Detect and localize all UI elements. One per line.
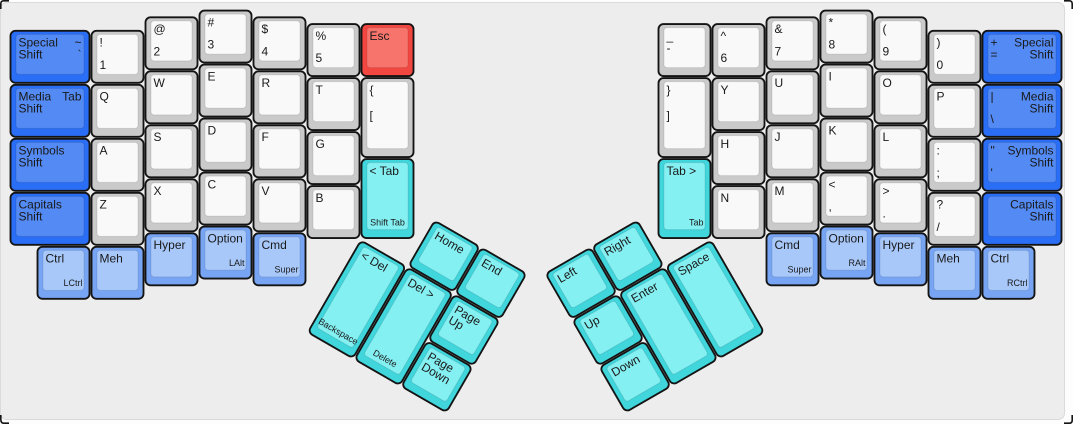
svg-text:LAlt: LAlt xyxy=(229,258,245,268)
svg-text:Ctrl: Ctrl xyxy=(46,252,65,266)
svg-text:Super: Super xyxy=(274,265,298,275)
svg-text:Shift: Shift xyxy=(19,156,44,170)
svg-text:}: } xyxy=(667,83,671,97)
svg-text:>: > xyxy=(883,184,890,198)
svg-text:6: 6 xyxy=(721,51,728,65)
svg-text:Hyper: Hyper xyxy=(154,238,186,252)
svg-text:#: # xyxy=(208,15,215,29)
svg-text:U: U xyxy=(775,76,784,90)
svg-text:): ) xyxy=(937,36,941,50)
svg-text:P: P xyxy=(937,90,945,104)
svg-text:I: I xyxy=(829,69,832,83)
svg-text:<: < xyxy=(829,177,836,191)
svg-text:Q: Q xyxy=(100,90,109,104)
svg-text:M: M xyxy=(775,184,785,198)
svg-text:': ' xyxy=(991,166,993,180)
svg-text:Shift: Shift xyxy=(1029,102,1054,116)
svg-text:1: 1 xyxy=(100,58,107,72)
svg-text:D: D xyxy=(208,123,217,137)
svg-text:,: , xyxy=(829,200,832,214)
svg-text:Super: Super xyxy=(787,265,811,275)
svg-text:Shift: Shift xyxy=(19,48,44,62)
svg-text:?: ? xyxy=(937,198,944,212)
svg-text:Ctrl: Ctrl xyxy=(991,252,1010,266)
svg-text:(: ( xyxy=(883,22,887,36)
svg-text:O: O xyxy=(883,76,892,90)
svg-text:T: T xyxy=(316,83,324,97)
svg-text:Shift: Shift xyxy=(19,102,44,116)
svg-text:B: B xyxy=(316,191,324,205)
svg-text:%: % xyxy=(316,29,327,43)
svg-text:9: 9 xyxy=(883,44,890,58)
svg-text:4: 4 xyxy=(262,44,269,58)
svg-text:< Tab: < Tab xyxy=(370,164,400,178)
svg-text:L: L xyxy=(883,130,890,144)
svg-text:S: S xyxy=(154,130,162,144)
svg-text:RCtrl: RCtrl xyxy=(1007,278,1028,288)
svg-text:Shift: Shift xyxy=(1029,156,1054,170)
svg-text:Hyper: Hyper xyxy=(883,238,915,252)
svg-text:!: ! xyxy=(100,36,103,50)
svg-text:N: N xyxy=(721,191,730,205)
svg-text:V: V xyxy=(262,184,270,198)
svg-text:Option: Option xyxy=(829,231,864,245)
svg-text:7: 7 xyxy=(775,44,782,58)
svg-text:Tab: Tab xyxy=(62,90,82,104)
svg-text:Tab: Tab xyxy=(689,217,704,227)
svg-text:Shift Tab: Shift Tab xyxy=(370,217,405,227)
svg-text:Option: Option xyxy=(208,231,243,245)
svg-text:Cmd: Cmd xyxy=(775,238,800,252)
svg-text:Shift: Shift xyxy=(1029,210,1054,224)
svg-text:LCtrl: LCtrl xyxy=(63,278,82,288)
svg-text:Meh: Meh xyxy=(100,252,123,266)
svg-text:Cmd: Cmd xyxy=(262,238,287,252)
svg-text:|: | xyxy=(991,90,994,104)
svg-text:F: F xyxy=(262,130,269,144)
svg-text:8: 8 xyxy=(829,38,836,52)
svg-text:2: 2 xyxy=(154,44,161,58)
svg-text:^: ^ xyxy=(721,29,727,43)
svg-text:X: X xyxy=(154,184,162,198)
svg-text:R: R xyxy=(262,76,271,90)
svg-text:0: 0 xyxy=(937,58,944,72)
svg-text:]: ] xyxy=(667,109,670,123)
svg-text:5: 5 xyxy=(316,51,323,65)
svg-text:Shift: Shift xyxy=(19,210,44,224)
svg-text:3: 3 xyxy=(208,38,215,52)
svg-text:$: $ xyxy=(262,22,269,36)
svg-text:&: & xyxy=(775,22,783,36)
svg-text:=: = xyxy=(991,48,998,62)
svg-text::: : xyxy=(937,144,940,158)
svg-text:{: { xyxy=(370,83,374,97)
svg-text:K: K xyxy=(829,123,837,137)
svg-text:Meh: Meh xyxy=(937,252,960,266)
svg-text:.: . xyxy=(883,206,886,220)
svg-text:Tab >: Tab > xyxy=(667,164,697,178)
svg-text:A: A xyxy=(100,144,108,158)
svg-text:`: ` xyxy=(78,48,82,62)
svg-text:H: H xyxy=(721,137,730,151)
svg-text:-: - xyxy=(667,41,671,55)
svg-text:C: C xyxy=(208,177,217,191)
svg-text:": " xyxy=(991,144,995,158)
svg-text:J: J xyxy=(775,130,781,144)
svg-text:Z: Z xyxy=(100,198,107,212)
svg-text:Shift: Shift xyxy=(1029,48,1054,62)
svg-text:*: * xyxy=(829,15,834,29)
svg-text:RAlt: RAlt xyxy=(848,258,866,268)
svg-text:G: G xyxy=(316,137,325,151)
svg-text:Esc: Esc xyxy=(370,29,390,43)
svg-text:Y: Y xyxy=(721,83,729,97)
svg-text:;: ; xyxy=(937,166,940,180)
svg-text:E: E xyxy=(208,69,216,83)
svg-text:@: @ xyxy=(154,22,166,36)
svg-text:W: W xyxy=(154,76,166,90)
